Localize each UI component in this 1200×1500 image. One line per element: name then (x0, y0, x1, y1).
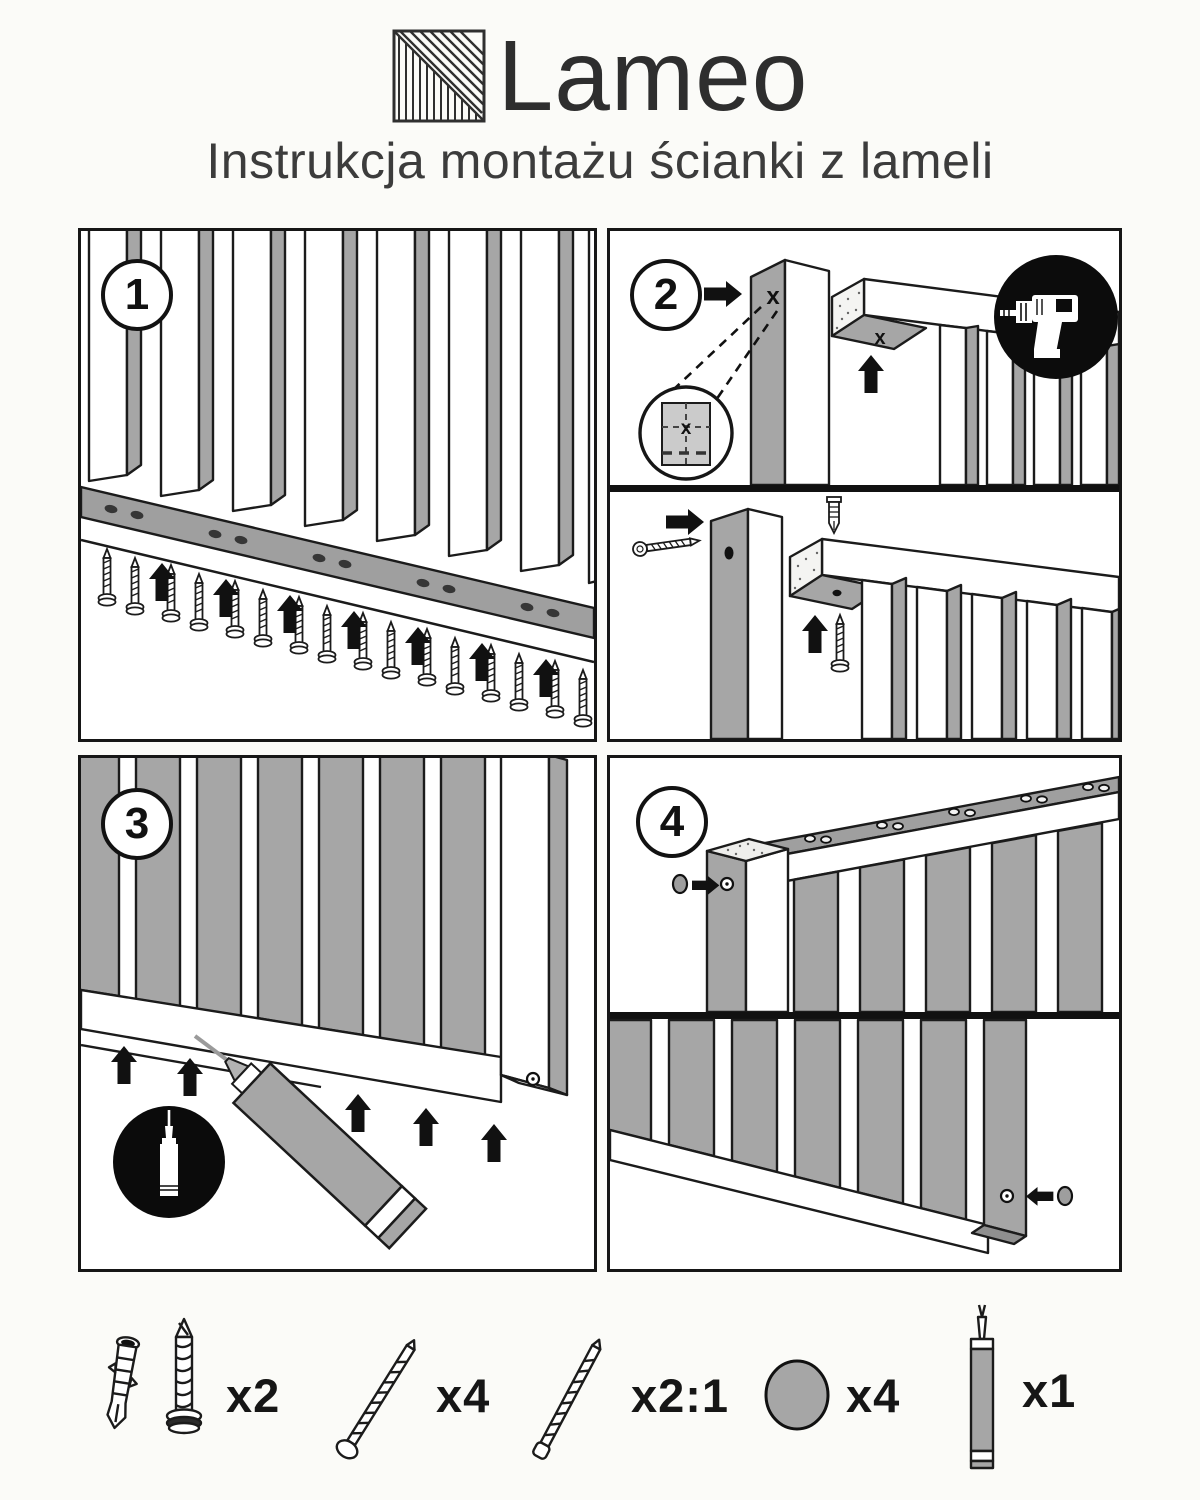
header: Lameo Instrukcja montażu ścianki z lamel… (0, 0, 1200, 190)
step-badge: 1 (101, 259, 173, 331)
page-subtitle: Instrukcja montażu ścianki z lameli (0, 132, 1200, 190)
step-number: 3 (125, 799, 149, 849)
screw-cap-icon (1001, 1190, 1013, 1202)
wall-plug-icon (827, 497, 841, 533)
step-3-panel: 3 (78, 755, 597, 1272)
drill-mark: x (766, 283, 780, 310)
right-arrow-icon (666, 509, 704, 535)
part-qty: x4 (846, 1368, 900, 1423)
part-qty: x2 (226, 1368, 280, 1423)
part-qty: x1 (1022, 1363, 1076, 1418)
cover-cap-icon (673, 875, 687, 893)
step-badge: 3 (101, 788, 173, 860)
screw-cap-icon (721, 878, 733, 890)
step-1-panel: 1 (78, 228, 597, 742)
instruction-sheet: Lameo Instrukcja montażu ścianki z lamel… (0, 0, 1200, 1500)
wall-plug-and-screw-icon (100, 1315, 212, 1475)
part-slat-screw: x2:1 (525, 1305, 729, 1485)
slat-screw-icon (525, 1315, 617, 1475)
sealant-tube-icon (958, 1303, 1008, 1478)
part-wall-plug-with-screw: x2 (100, 1305, 280, 1485)
cover-cap-icon (1058, 1187, 1072, 1205)
part-cover-cap: x4 (762, 1305, 900, 1485)
up-arrow-icons (149, 563, 559, 697)
screw-icon (832, 615, 849, 672)
part-mounting-screw: x4 (330, 1305, 490, 1485)
step-number: 4 (660, 797, 684, 847)
step-badge: 2 (630, 259, 702, 331)
part-sealant-tube: x1 (958, 1300, 1076, 1480)
mounting-screw-icon (330, 1315, 422, 1475)
sealant-tube-icon (113, 1106, 225, 1218)
step-number: 2 (654, 270, 678, 320)
screw-icon (632, 534, 700, 557)
up-arrow-icon (802, 615, 828, 653)
brand-name: Lameo (498, 28, 809, 124)
screw-cap-icon (527, 1073, 539, 1085)
part-qty: x2:1 (631, 1368, 729, 1423)
step-2-panel: x x x (607, 228, 1122, 742)
pilot-hole-mark: x (874, 327, 885, 349)
cover-cap-icon (762, 1315, 832, 1475)
brand-logo (392, 29, 486, 123)
up-arrow-icon (858, 355, 884, 393)
left-arrow-icon (1026, 1187, 1053, 1206)
drill-icon (994, 255, 1118, 379)
step-number: 1 (125, 270, 149, 320)
right-arrow-icon (704, 281, 742, 307)
step-4-panel: 4 (607, 755, 1122, 1272)
step-badge: 4 (636, 786, 708, 858)
center-mark: x (681, 418, 692, 439)
part-qty: x4 (436, 1368, 490, 1423)
